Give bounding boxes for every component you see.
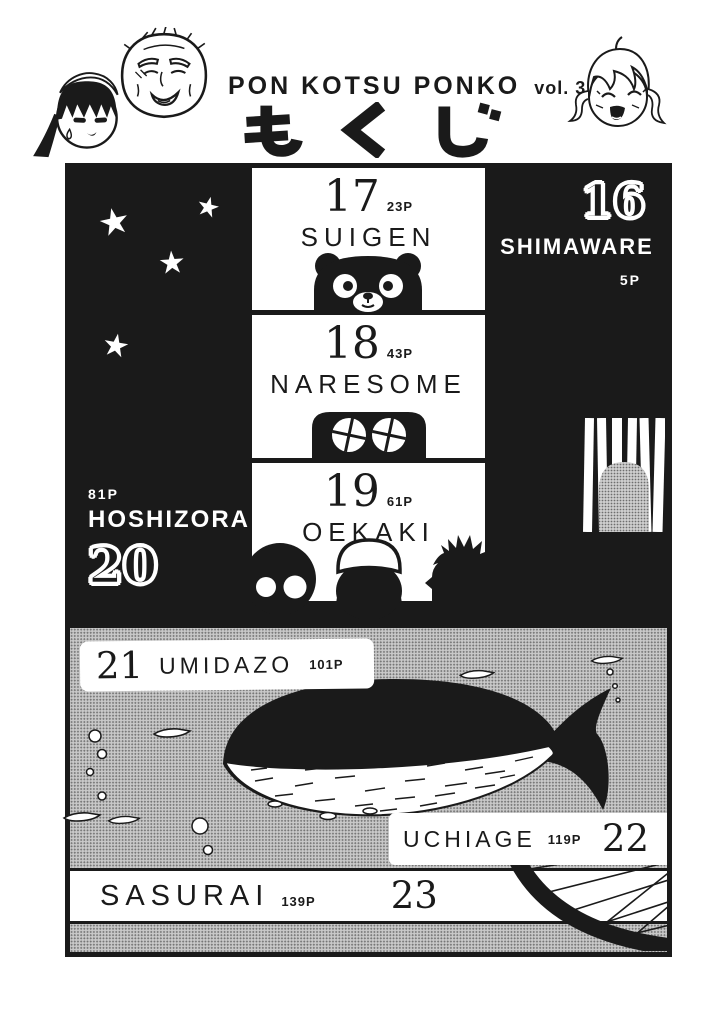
star-icon: ★	[157, 246, 187, 279]
chapter-pages: 23P	[387, 199, 413, 214]
chapter-number: 21	[96, 646, 143, 685]
chapter-title: UCHIAGE	[403, 826, 536, 853]
star-icon: ★	[95, 201, 134, 243]
chapter-number: 23	[391, 877, 438, 916]
bicycle-wheel-art	[497, 856, 667, 951]
toc-entry-uchiage: UCHIAGE 119P 22	[389, 813, 667, 865]
old-man-face-art	[113, 27, 215, 124]
chapter-pages: 139P	[281, 894, 315, 909]
chapter-title: UMIDAZO	[159, 651, 293, 679]
chapter-number: 16	[581, 174, 645, 228]
chapter-number: 20	[88, 536, 256, 595]
chapter-number: 18	[324, 321, 380, 367]
chapter-number: 17	[324, 174, 380, 220]
barred-window-art	[583, 418, 665, 532]
chapter-pages: 101P	[309, 656, 344, 671]
toc-entry-suigen: 17 23P SUIGEN	[252, 168, 485, 310]
chapter-title: SASURAI	[100, 880, 269, 913]
curly-girl-face-art	[556, 33, 681, 145]
bear-face-art	[308, 250, 428, 314]
toc-entry-hoshizora: 81P HOSHIZORA 20	[88, 486, 256, 595]
toc-entry-shimaware: 16 SHIMAWARE 5P	[485, 168, 667, 628]
toc-entry-oekaki: 19 61P OEKAKI	[252, 463, 485, 601]
kana-ji-art	[426, 102, 506, 158]
chapter-number: 22	[602, 820, 649, 859]
kana-mo-art	[234, 102, 304, 158]
chapter-pages: 119P	[548, 832, 582, 847]
toc-entry-umidazo: 21 UMIDAZO 101P	[80, 638, 375, 691]
kana-ku-art	[336, 102, 394, 158]
star-icon: ★	[100, 328, 133, 363]
series-title: PON KOTSU PONKO	[228, 72, 520, 101]
toc-grid: ★ ★ ★ ★ 81P HOSHIZORA 20 17 23P SUIGEN	[70, 168, 667, 628]
chapter-pages: 81P	[88, 486, 256, 502]
chapter-pages: 61P	[387, 494, 413, 509]
star-icon: ★	[193, 191, 223, 223]
van-art	[304, 403, 434, 463]
page-title: PON KOTSU PONKO vol. 3	[228, 72, 586, 101]
sea-section: 21 UMIDAZO 101P UCHIAGE	[70, 628, 667, 868]
kana-mokuji-art	[234, 102, 506, 158]
chapter-pages: 43P	[387, 346, 413, 361]
header: PON KOTSU PONKO vol. 3	[0, 0, 720, 160]
toc-frame: ★ ★ ★ ★ 81P HOSHIZORA 20 17 23P SUIGEN	[65, 163, 672, 957]
chapter-pages: 5P	[620, 272, 641, 288]
toc-entry-naresome: 18 43P NARESOME	[252, 315, 485, 458]
chapter-title: SHIMAWARE	[497, 234, 657, 260]
chapter-number: 19	[324, 469, 380, 515]
chapter-title: HOSHIZORA	[88, 506, 256, 534]
three-heads-silhouette-art	[252, 527, 485, 619]
chapter-title: NARESOME	[252, 369, 485, 400]
chapter-title: SUIGEN	[252, 222, 485, 253]
